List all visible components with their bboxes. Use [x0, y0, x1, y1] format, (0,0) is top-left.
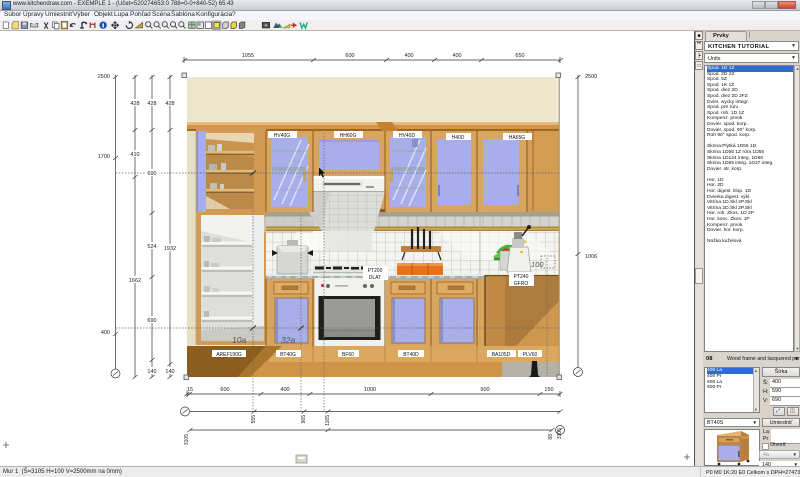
svg-text:400: 400	[280, 387, 289, 393]
svg-text:690: 690	[147, 318, 156, 324]
svg-text:88: 88	[548, 434, 554, 440]
svg-text:PLV60: PLV60	[523, 352, 538, 358]
svg-text:BT40D: BT40D	[403, 352, 419, 358]
svg-text:HA65G: HA65G	[509, 135, 526, 141]
svg-text:PT240: PT240	[514, 274, 529, 280]
svg-text:32a: 32a	[281, 335, 295, 345]
svg-text:428: 428	[147, 101, 156, 107]
svg-text:BT40G: BT40G	[280, 352, 296, 358]
svg-text:1662: 1662	[129, 278, 141, 284]
svg-text:900: 900	[480, 387, 489, 393]
svg-text:10a: 10a	[232, 335, 246, 345]
svg-text:690: 690	[147, 171, 156, 177]
svg-text:1006: 1006	[585, 254, 597, 260]
svg-text:400: 400	[452, 53, 461, 59]
svg-text:400: 400	[101, 330, 110, 336]
svg-text:555: 555	[251, 415, 257, 424]
svg-text:428: 428	[130, 101, 139, 107]
svg-text:1165: 1165	[325, 415, 331, 426]
svg-text:140: 140	[165, 369, 174, 375]
svg-text:BA105D: BA105D	[492, 352, 511, 358]
svg-text:150: 150	[544, 387, 553, 393]
svg-text:428: 428	[165, 101, 174, 107]
svg-text:650: 650	[515, 53, 524, 59]
svg-text:BF60: BF60	[342, 352, 354, 358]
svg-text:1932: 1932	[164, 246, 176, 252]
svg-text:HH60G: HH60G	[340, 133, 357, 139]
svg-text:965: 965	[301, 415, 307, 424]
svg-text:GFRO: GFRO	[514, 281, 529, 287]
svg-text:3105: 3105	[557, 428, 563, 439]
svg-text:1000: 1000	[364, 387, 376, 393]
svg-text:AREF190G: AREF190G	[216, 352, 242, 358]
svg-text:600: 600	[220, 387, 229, 393]
svg-text:410: 410	[130, 152, 139, 158]
svg-text:140: 140	[147, 369, 156, 375]
svg-text:15: 15	[187, 387, 193, 393]
svg-text:1055: 1055	[242, 53, 254, 59]
svg-text:PT200: PT200	[368, 268, 383, 274]
svg-text:HV40D: HV40D	[399, 133, 416, 139]
svg-text:400: 400	[404, 53, 413, 59]
svg-text:H40D: H40D	[452, 135, 465, 141]
svg-text:HV40G: HV40G	[274, 133, 291, 139]
svg-text:524: 524	[147, 244, 156, 250]
svg-text:600: 600	[345, 53, 354, 59]
svg-text:1700: 1700	[98, 154, 110, 160]
svg-text:DLAT: DLAT	[369, 275, 381, 281]
svg-text:3105: 3105	[184, 434, 190, 445]
svg-text:2500: 2500	[98, 74, 110, 80]
svg-text:2500: 2500	[585, 74, 597, 80]
svg-text:100: 100	[531, 260, 544, 269]
